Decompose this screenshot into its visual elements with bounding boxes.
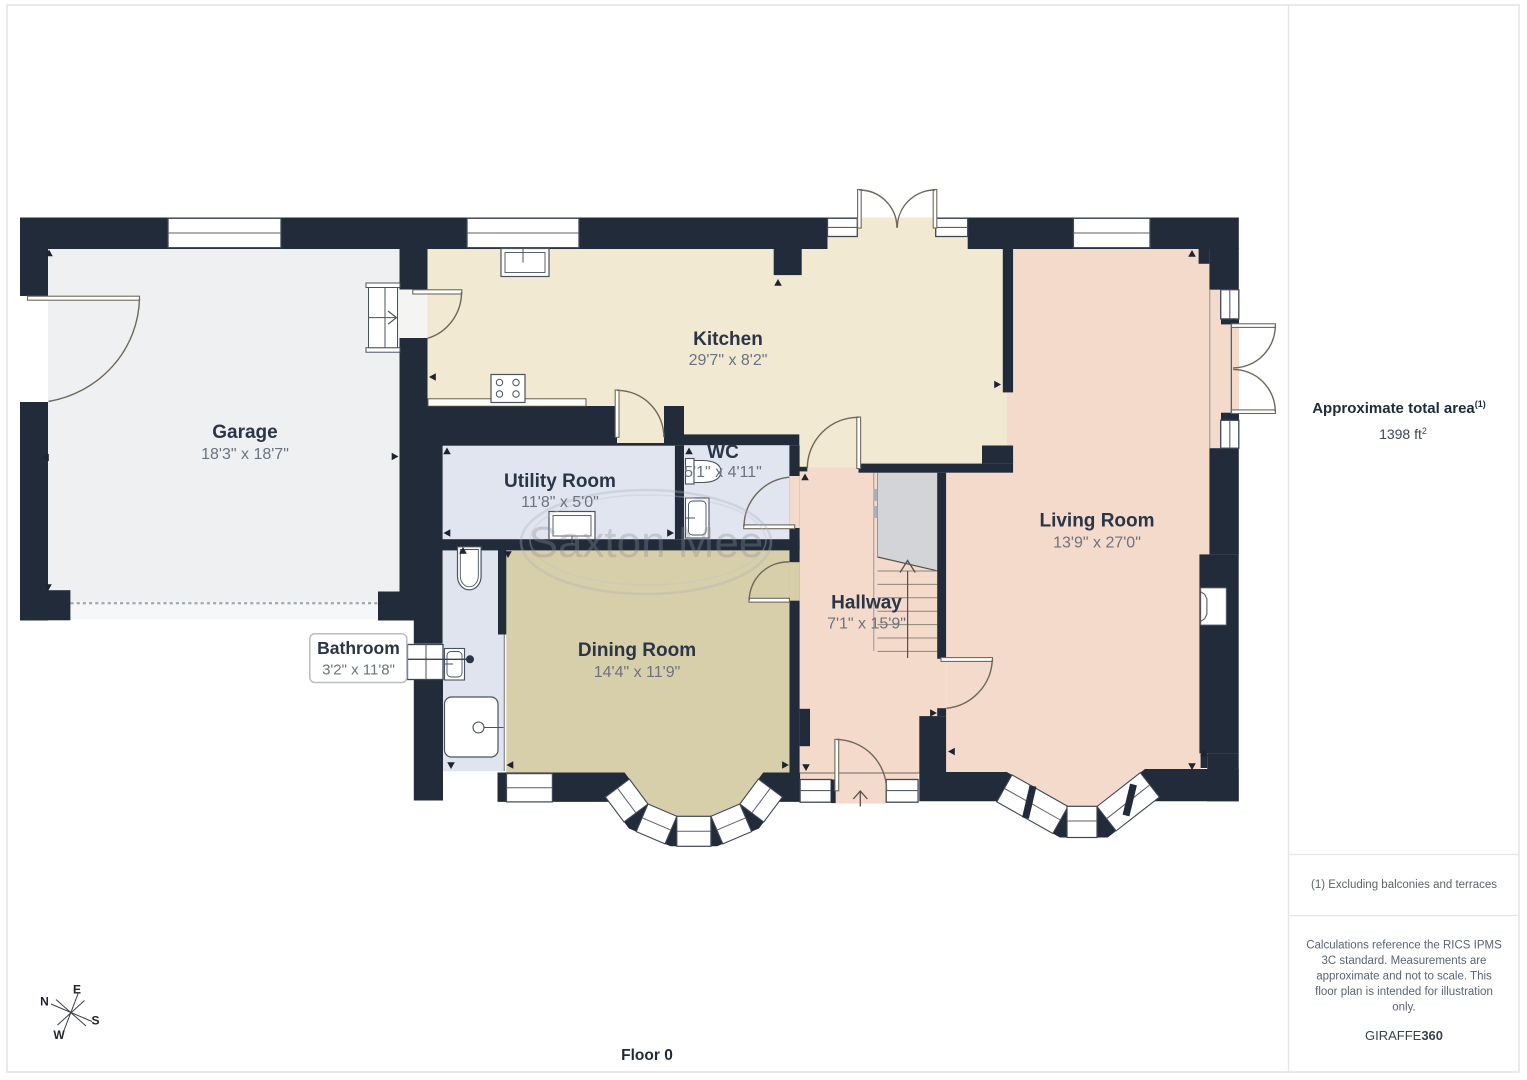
- svg-text:WC: WC: [707, 442, 739, 463]
- svg-text:Living Room: Living Room: [1039, 511, 1154, 532]
- svg-text:Hallway: Hallway: [831, 593, 902, 614]
- svg-text:7'1" x 15'9": 7'1" x 15'9": [827, 616, 906, 633]
- svg-text:14'4" x 11'9": 14'4" x 11'9": [594, 664, 681, 681]
- svg-text:13'9" x 27'0": 13'9" x 27'0": [1053, 535, 1141, 552]
- svg-text:GIRAFFE360: GIRAFFE360: [1365, 1028, 1443, 1043]
- svg-text:3'2" x 11'8": 3'2" x 11'8": [322, 662, 395, 679]
- svg-text:S: S: [91, 1014, 99, 1028]
- svg-text:approximate and not to scale.: approximate and not to scale. This: [1316, 971, 1492, 983]
- svg-text:Utility Room: Utility Room: [504, 471, 616, 492]
- svg-text:W: W: [53, 1028, 65, 1042]
- svg-text:floor plan is intended for ill: floor plan is intended for illustration: [1315, 986, 1493, 998]
- svg-text:29'7" x 8'2": 29'7" x 8'2": [689, 352, 768, 369]
- svg-text:Approximate total area(1): Approximate total area(1): [1312, 399, 1486, 417]
- svg-text:3C standard. Measurements are: 3C standard. Measurements are: [1322, 955, 1487, 967]
- svg-text:Bathroom: Bathroom: [317, 638, 400, 658]
- svg-text:11'8" x 5'0": 11'8" x 5'0": [521, 494, 599, 511]
- svg-text:Calculations reference the RIC: Calculations reference the RICS IPMS: [1306, 940, 1502, 952]
- svg-text:1398 ft2: 1398 ft2: [1379, 426, 1427, 442]
- svg-text:Garage: Garage: [212, 422, 277, 443]
- svg-text:5'1" x 4'11": 5'1" x 4'11": [684, 464, 762, 481]
- svg-text:18'3" x 18'7": 18'3" x 18'7": [201, 446, 289, 463]
- svg-text:(1) Excluding balconies and te: (1) Excluding balconies and terraces: [1311, 879, 1497, 891]
- svg-text:Dining Room: Dining Room: [578, 640, 696, 661]
- svg-text:Floor 0: Floor 0: [621, 1047, 673, 1064]
- svg-text:Kitchen: Kitchen: [693, 329, 763, 350]
- svg-text:only.: only.: [1392, 1002, 1415, 1014]
- svg-text:Saxton Mee: Saxton Mee: [529, 518, 764, 567]
- svg-text:E: E: [73, 983, 81, 997]
- svg-text:N: N: [40, 995, 49, 1009]
